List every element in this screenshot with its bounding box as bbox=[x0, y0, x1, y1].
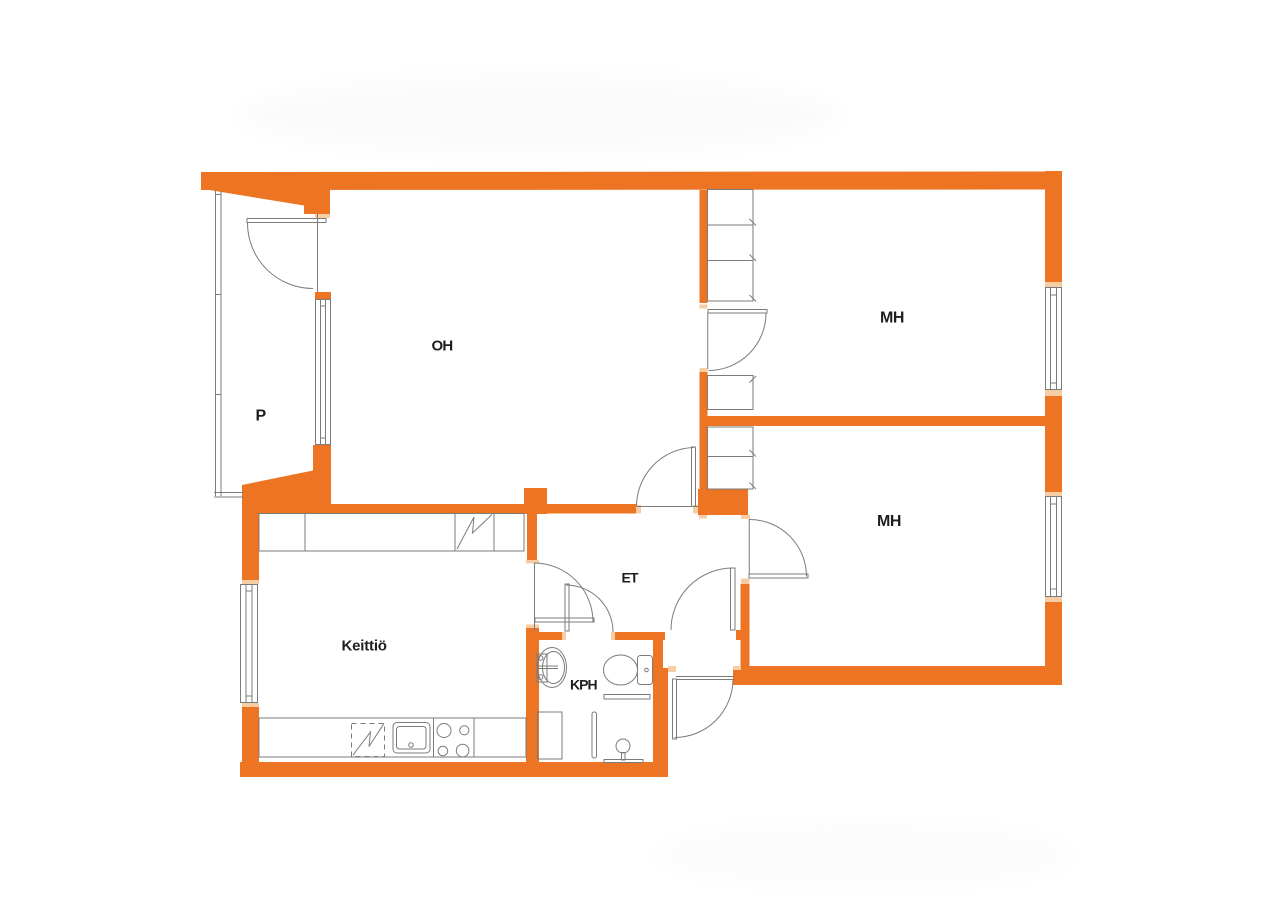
svg-text:ET: ET bbox=[622, 570, 640, 586]
svg-text:KPH: KPH bbox=[570, 677, 597, 693]
svg-text:OH: OH bbox=[432, 338, 453, 355]
svg-text:Keittiö: Keittiö bbox=[342, 638, 387, 655]
svg-text:P: P bbox=[256, 408, 267, 425]
svg-text:MH: MH bbox=[877, 513, 901, 530]
svg-text:MH: MH bbox=[880, 310, 904, 327]
